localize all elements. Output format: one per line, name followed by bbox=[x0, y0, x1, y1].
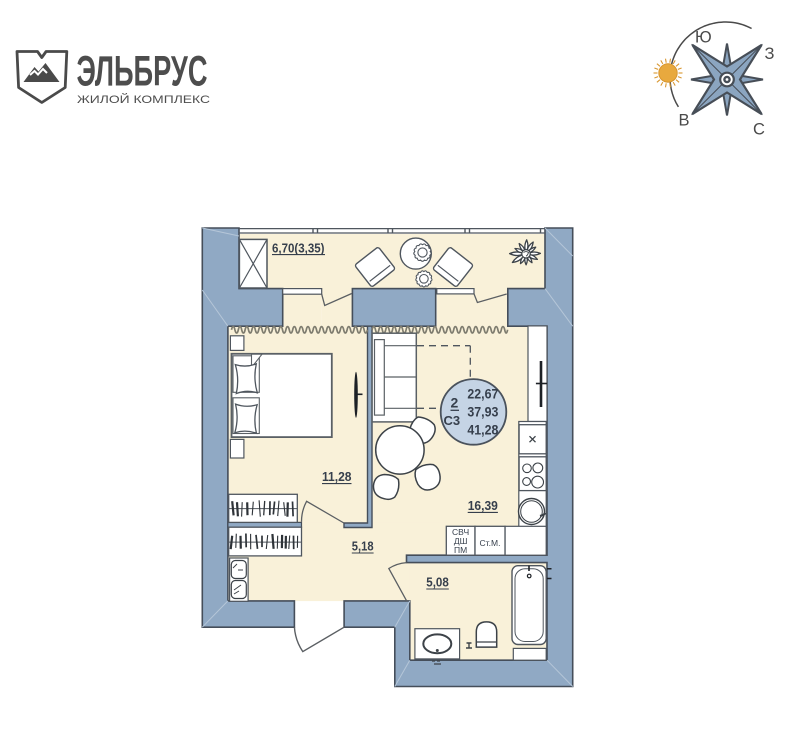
svg-text:В: В bbox=[679, 112, 690, 130]
svg-text:37,93: 37,93 bbox=[467, 404, 498, 419]
svg-text:5,18: 5,18 bbox=[352, 540, 374, 554]
svg-text:С3: С3 bbox=[444, 413, 461, 428]
svg-text:С: С bbox=[753, 121, 765, 139]
svg-text:5,08: 5,08 bbox=[426, 576, 449, 590]
svg-text:16,39: 16,39 bbox=[468, 499, 498, 513]
svg-text:2: 2 bbox=[451, 395, 459, 411]
svg-text:22,67: 22,67 bbox=[467, 387, 498, 402]
svg-text:З: З bbox=[765, 45, 775, 63]
svg-text:Ю: Ю bbox=[695, 29, 712, 47]
svg-text:ПМ: ПМ bbox=[454, 545, 467, 555]
svg-text:ЖИЛОЙ КОМПЛЕКС: ЖИЛОЙ КОМПЛЕКС bbox=[77, 93, 210, 106]
svg-text:41,28: 41,28 bbox=[467, 422, 498, 437]
svg-text:6,70(3,35): 6,70(3,35) bbox=[272, 242, 325, 256]
svg-text:ЭЛЬБРУС: ЭЛЬБРУС bbox=[77, 48, 208, 96]
svg-text:Ст.М.: Ст.М. bbox=[480, 538, 501, 548]
svg-text:11,28: 11,28 bbox=[322, 470, 352, 484]
